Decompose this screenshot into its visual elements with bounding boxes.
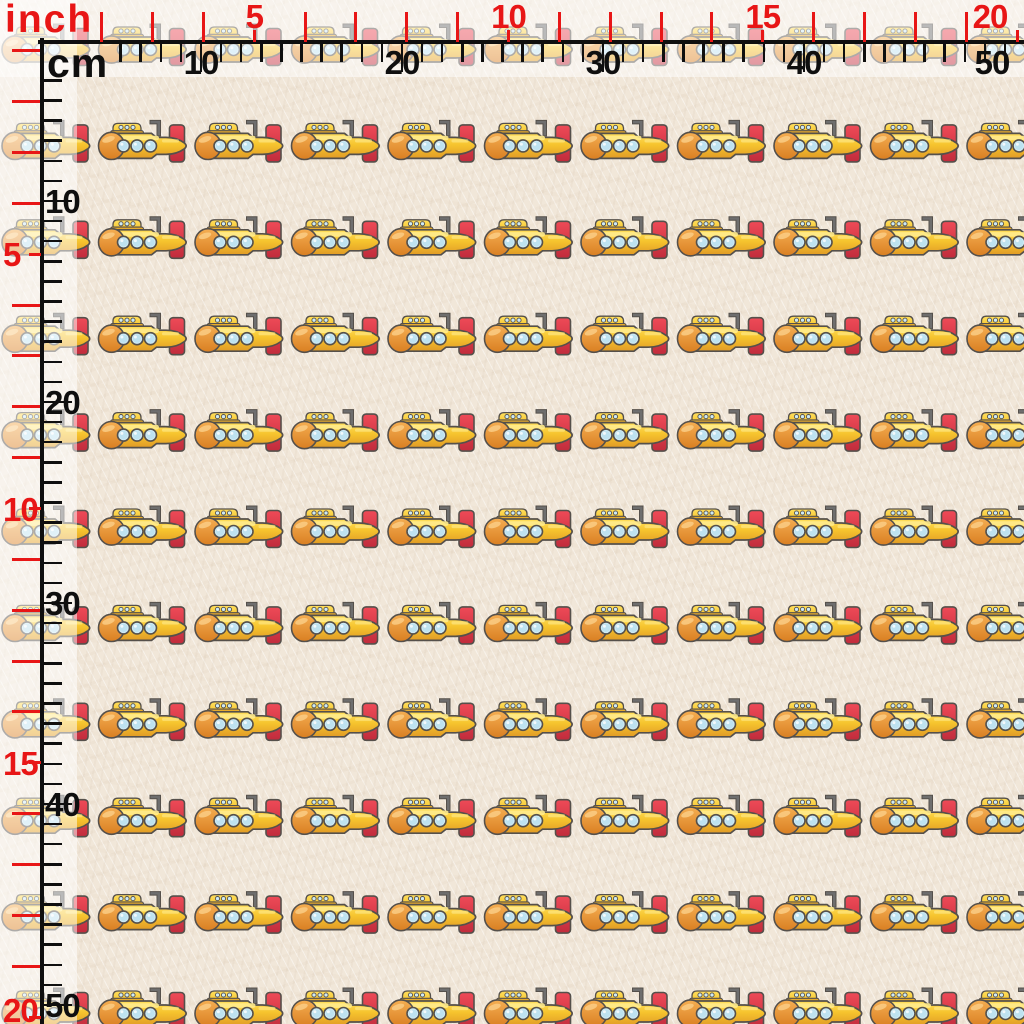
submarine-icon xyxy=(99,602,187,644)
submarine-icon xyxy=(967,795,1024,837)
submarine-icon xyxy=(99,892,187,934)
submarine-icon xyxy=(388,217,476,258)
submarine-icon xyxy=(485,120,573,161)
submarine-icon xyxy=(99,120,187,161)
submarine-icon xyxy=(195,506,283,548)
submarine-icon xyxy=(967,410,1024,452)
submarine-icon xyxy=(485,892,573,934)
submarine-icon xyxy=(581,892,669,934)
top-ruler-strip xyxy=(0,0,1024,77)
submarine-icon xyxy=(581,506,669,548)
submarine-icon xyxy=(292,699,380,741)
submarine-icon xyxy=(485,410,573,452)
fabric-preview: 1020304050102030405051015205101520 inch … xyxy=(0,0,1024,1024)
submarine-icon xyxy=(388,120,476,161)
submarine-icon xyxy=(871,795,959,837)
submarine-icon xyxy=(388,892,476,934)
submarine-icon xyxy=(195,217,283,258)
submarine-icon xyxy=(388,988,476,1024)
submarine-icon xyxy=(581,988,669,1024)
submarine-icon xyxy=(99,217,187,258)
submarine-icon xyxy=(292,313,380,355)
submarine-icon xyxy=(871,988,959,1024)
submarine-icon xyxy=(871,120,959,161)
submarine-icon xyxy=(485,699,573,741)
submarine-icon xyxy=(485,313,573,355)
submarine-icon xyxy=(871,410,959,452)
submarine-icon xyxy=(388,506,476,548)
submarine-icon xyxy=(99,410,187,452)
submarine-icon xyxy=(871,699,959,741)
inch-unit-label: inch xyxy=(5,0,93,42)
submarine-icon xyxy=(99,313,187,355)
submarine-pattern xyxy=(0,0,1024,1024)
submarine-icon xyxy=(195,602,283,644)
submarine-icon xyxy=(774,120,862,161)
submarine-icon xyxy=(292,410,380,452)
submarine-icon xyxy=(292,120,380,161)
submarine-icon xyxy=(774,699,862,741)
submarine-icon xyxy=(581,217,669,258)
submarine-icon xyxy=(774,217,862,258)
submarine-icon xyxy=(292,602,380,644)
submarine-icon xyxy=(388,410,476,452)
submarine-icon xyxy=(678,602,766,644)
submarine-icon xyxy=(388,313,476,355)
submarine-icon xyxy=(195,795,283,837)
submarine-icon xyxy=(99,988,187,1024)
submarine-icon xyxy=(195,410,283,452)
submarine-icon xyxy=(967,602,1024,644)
submarine-icon xyxy=(485,506,573,548)
submarine-icon xyxy=(581,602,669,644)
submarine-icon xyxy=(388,699,476,741)
submarine-icon xyxy=(292,506,380,548)
submarine-icon xyxy=(678,506,766,548)
submarine-icon xyxy=(99,699,187,741)
submarine-icon xyxy=(967,120,1024,161)
submarine-icon xyxy=(195,699,283,741)
submarine-icon xyxy=(195,988,283,1024)
submarine-icon xyxy=(967,313,1024,355)
submarine-icon xyxy=(871,892,959,934)
submarine-icon xyxy=(195,313,283,355)
left-ruler-strip xyxy=(0,0,77,1024)
submarine-icon xyxy=(292,892,380,934)
submarine-icon xyxy=(581,410,669,452)
submarine-icon xyxy=(678,313,766,355)
submarine-icon xyxy=(967,988,1024,1024)
submarine-icon xyxy=(195,120,283,161)
submarine-icon xyxy=(581,313,669,355)
submarine-icon xyxy=(581,795,669,837)
submarine-icon xyxy=(678,988,766,1024)
submarine-icon xyxy=(292,217,380,258)
submarine-icon xyxy=(774,410,862,452)
submarine-icon xyxy=(195,892,283,934)
submarine-icon xyxy=(388,795,476,837)
submarine-icon xyxy=(967,699,1024,741)
submarine-icon xyxy=(774,602,862,644)
submarine-icon xyxy=(774,988,862,1024)
fabric-swatch xyxy=(0,0,1024,1024)
submarine-icon xyxy=(871,506,959,548)
submarine-icon xyxy=(485,795,573,837)
submarine-icon xyxy=(967,506,1024,548)
submarine-icon xyxy=(99,795,187,837)
submarine-icon xyxy=(774,892,862,934)
submarine-icon xyxy=(292,988,380,1024)
submarine-icon xyxy=(967,892,1024,934)
submarine-icon xyxy=(485,217,573,258)
submarine-icon xyxy=(967,217,1024,258)
submarine-icon xyxy=(99,506,187,548)
submarine-icon xyxy=(678,699,766,741)
submarine-icon xyxy=(485,602,573,644)
submarine-icon xyxy=(678,217,766,258)
submarine-icon xyxy=(388,602,476,644)
submarine-icon xyxy=(871,217,959,258)
submarine-icon xyxy=(581,120,669,161)
submarine-icon xyxy=(774,313,862,355)
submarine-icon xyxy=(581,699,669,741)
submarine-icon xyxy=(678,795,766,837)
submarine-icon xyxy=(871,313,959,355)
submarine-icon xyxy=(871,602,959,644)
submarine-icon xyxy=(292,795,380,837)
submarine-icon xyxy=(774,795,862,837)
submarine-icon xyxy=(678,410,766,452)
submarine-icon xyxy=(485,988,573,1024)
submarine-icon xyxy=(678,120,766,161)
submarine-icon xyxy=(774,506,862,548)
cm-unit-label: cm xyxy=(47,40,108,87)
submarine-icon xyxy=(678,892,766,934)
